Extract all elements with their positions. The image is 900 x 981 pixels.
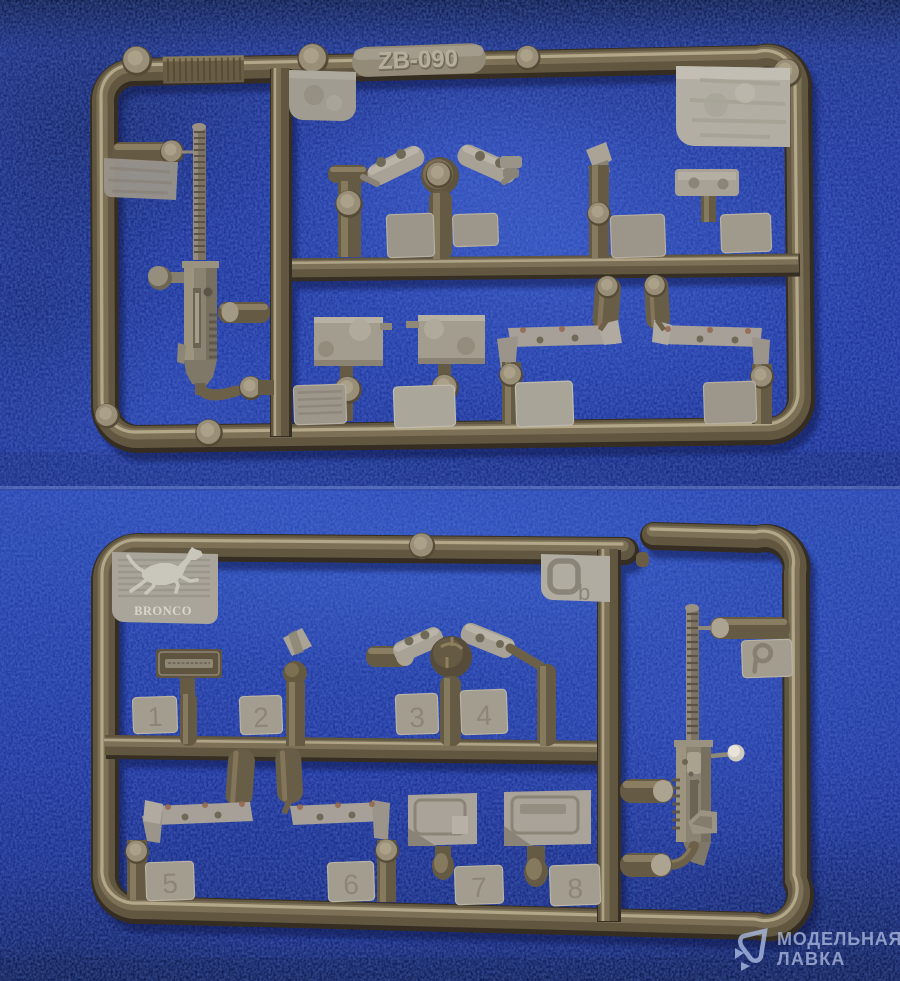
svg-text:5: 5 [162, 868, 179, 900]
svg-text:BRONCO: BRONCO [134, 604, 192, 618]
svg-text:МОДЕЛЬНАЯ: МОДЕЛЬНАЯ [777, 929, 900, 949]
svg-text:ЛАВКА: ЛАВКА [777, 949, 846, 969]
svg-text:b: b [578, 580, 590, 605]
svg-text:1: 1 [147, 702, 163, 733]
svg-text:4: 4 [476, 700, 493, 732]
svg-text:3: 3 [409, 702, 426, 734]
svg-text:6: 6 [343, 869, 360, 901]
svg-text:2: 2 [253, 702, 270, 734]
svg-text:8: 8 [567, 873, 584, 905]
svg-text:ZB-090: ZB-090 [377, 45, 458, 75]
svg-text:7: 7 [471, 872, 488, 904]
